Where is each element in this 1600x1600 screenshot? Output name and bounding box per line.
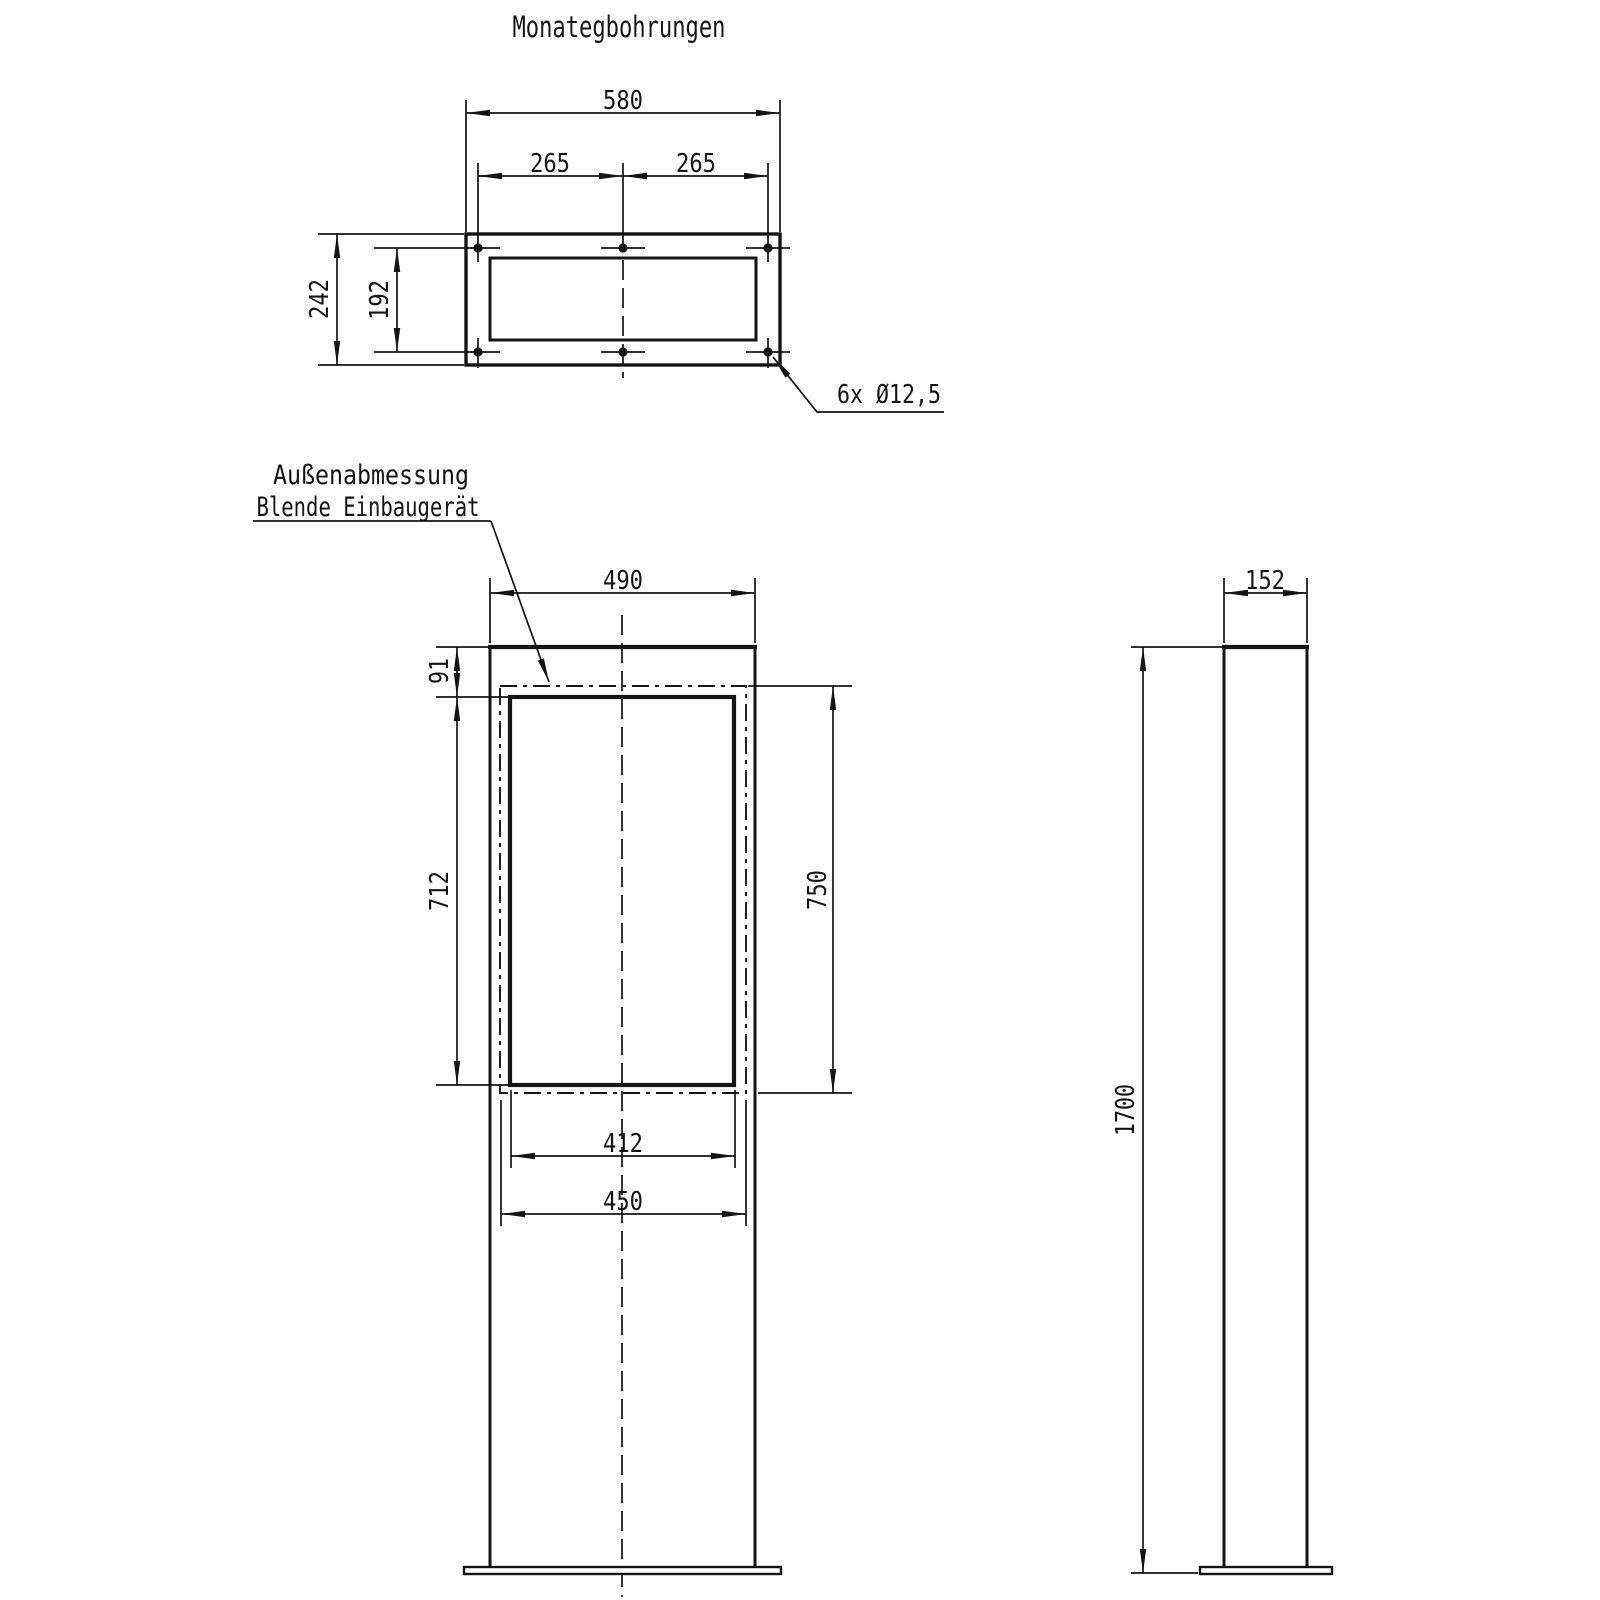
dim-hole-spacing-left: 265 (478, 149, 623, 179)
dim-192-label: 192 (365, 280, 395, 320)
mounting-hole (618, 347, 627, 356)
dim-580-label: 580 (603, 86, 643, 116)
dim-1700-label: 1700 (1111, 1084, 1141, 1136)
dim-450-label: 450 (603, 1187, 643, 1217)
dim-window-width: 412 (511, 1090, 735, 1168)
mounting-hole (618, 243, 627, 252)
note-line-1: Außenabmessung (273, 460, 469, 491)
dim-412-label: 412 (603, 1129, 643, 1159)
dim-top-offset: 91 (425, 647, 508, 697)
note-line-2: Blende Einbaugerät (257, 492, 480, 523)
top-view: Monategbohrungen 580 265 (305, 10, 944, 412)
note-leader (491, 521, 549, 682)
technical-drawing: Monategbohrungen 580 265 (0, 0, 1600, 1600)
dim-91-label: 91 (425, 658, 455, 684)
drawing-page: Monategbohrungen 580 265 (0, 0, 1600, 1600)
mounting-hole (473, 243, 482, 252)
mounting-hole (473, 347, 482, 356)
dim-712-label: 712 (425, 871, 455, 911)
mounting-hole (763, 243, 772, 252)
dim-242-label: 242 (305, 279, 335, 319)
dim-152-label: 152 (1245, 566, 1285, 596)
dim-window-height: 712 (425, 697, 508, 1085)
column-outline-side (1224, 647, 1307, 1567)
hole-callout: 6x Ø12,5 (773, 357, 944, 412)
base-plate-front (464, 1567, 781, 1574)
dim-blende-height: 750 (748, 686, 852, 1093)
dim-750-label: 750 (803, 870, 833, 910)
base-plate-side (1200, 1567, 1332, 1574)
mounting-hole (763, 347, 772, 356)
dim-hole-spacing-right: 265 (623, 149, 768, 179)
blende-outline (500, 686, 746, 1093)
dim-depth: 152 (1224, 566, 1307, 643)
dim-overall-height-top: 242 (305, 234, 337, 365)
dim-490-label: 490 (603, 566, 643, 596)
front-view: Außenabmessung Blende Einbaugerät 490 91 (253, 460, 852, 1597)
dim-blende-width: 450 (501, 1100, 746, 1226)
dim-hole-row-spacing: 192 (365, 248, 397, 352)
dim-265-right-label: 265 (676, 149, 716, 179)
dim-265-left-label: 265 (530, 149, 570, 179)
dim-overall-width-top: 580 (466, 86, 780, 116)
hole-callout-label: 6x Ø12,5 (837, 380, 941, 410)
drawing-title: Monategbohrungen (513, 10, 726, 44)
side-view: 152 1700 (1111, 566, 1332, 1574)
dim-overall-height: 1700 (1111, 647, 1222, 1573)
